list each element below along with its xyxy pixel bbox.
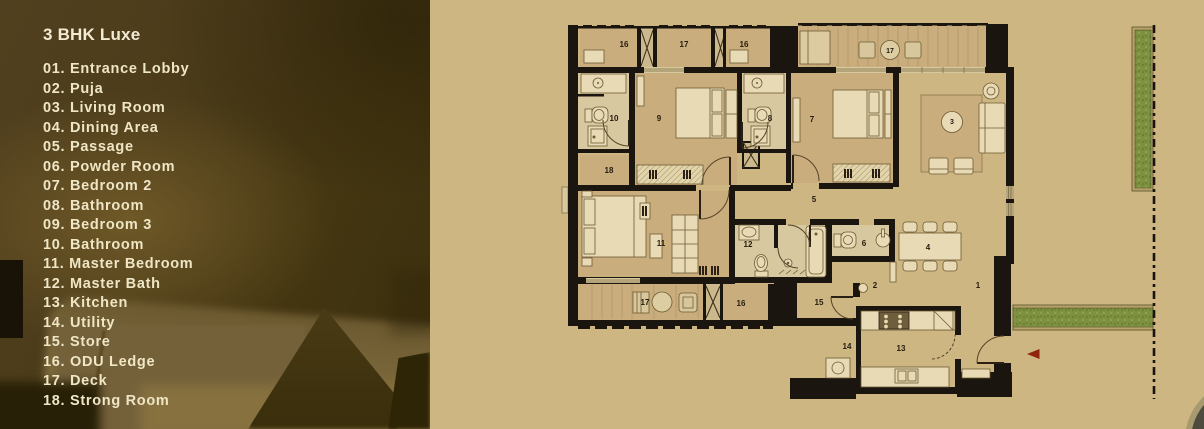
svg-text:13: 13 [897,344,906,353]
svg-text:11: 11 [657,239,666,248]
svg-text:16: 16 [620,40,629,49]
svg-text:3: 3 [950,119,954,126]
svg-text:10: 10 [610,114,619,123]
svg-text:17: 17 [886,48,894,55]
svg-text:9: 9 [657,114,662,123]
svg-text:16: 16 [740,40,749,49]
svg-text:1: 1 [976,281,981,290]
svg-text:15: 15 [815,298,824,307]
svg-text:6: 6 [862,239,867,248]
svg-text:7: 7 [810,115,815,124]
svg-text:16: 16 [737,299,746,308]
svg-text:17: 17 [641,298,650,307]
svg-text:2: 2 [873,281,878,290]
svg-text:14: 14 [843,342,852,351]
svg-text:17: 17 [680,40,689,49]
svg-text:12: 12 [744,240,753,249]
svg-text:8: 8 [768,114,773,123]
svg-text:18: 18 [605,166,614,175]
svg-text:4: 4 [926,243,931,252]
svg-text:5: 5 [812,195,817,204]
